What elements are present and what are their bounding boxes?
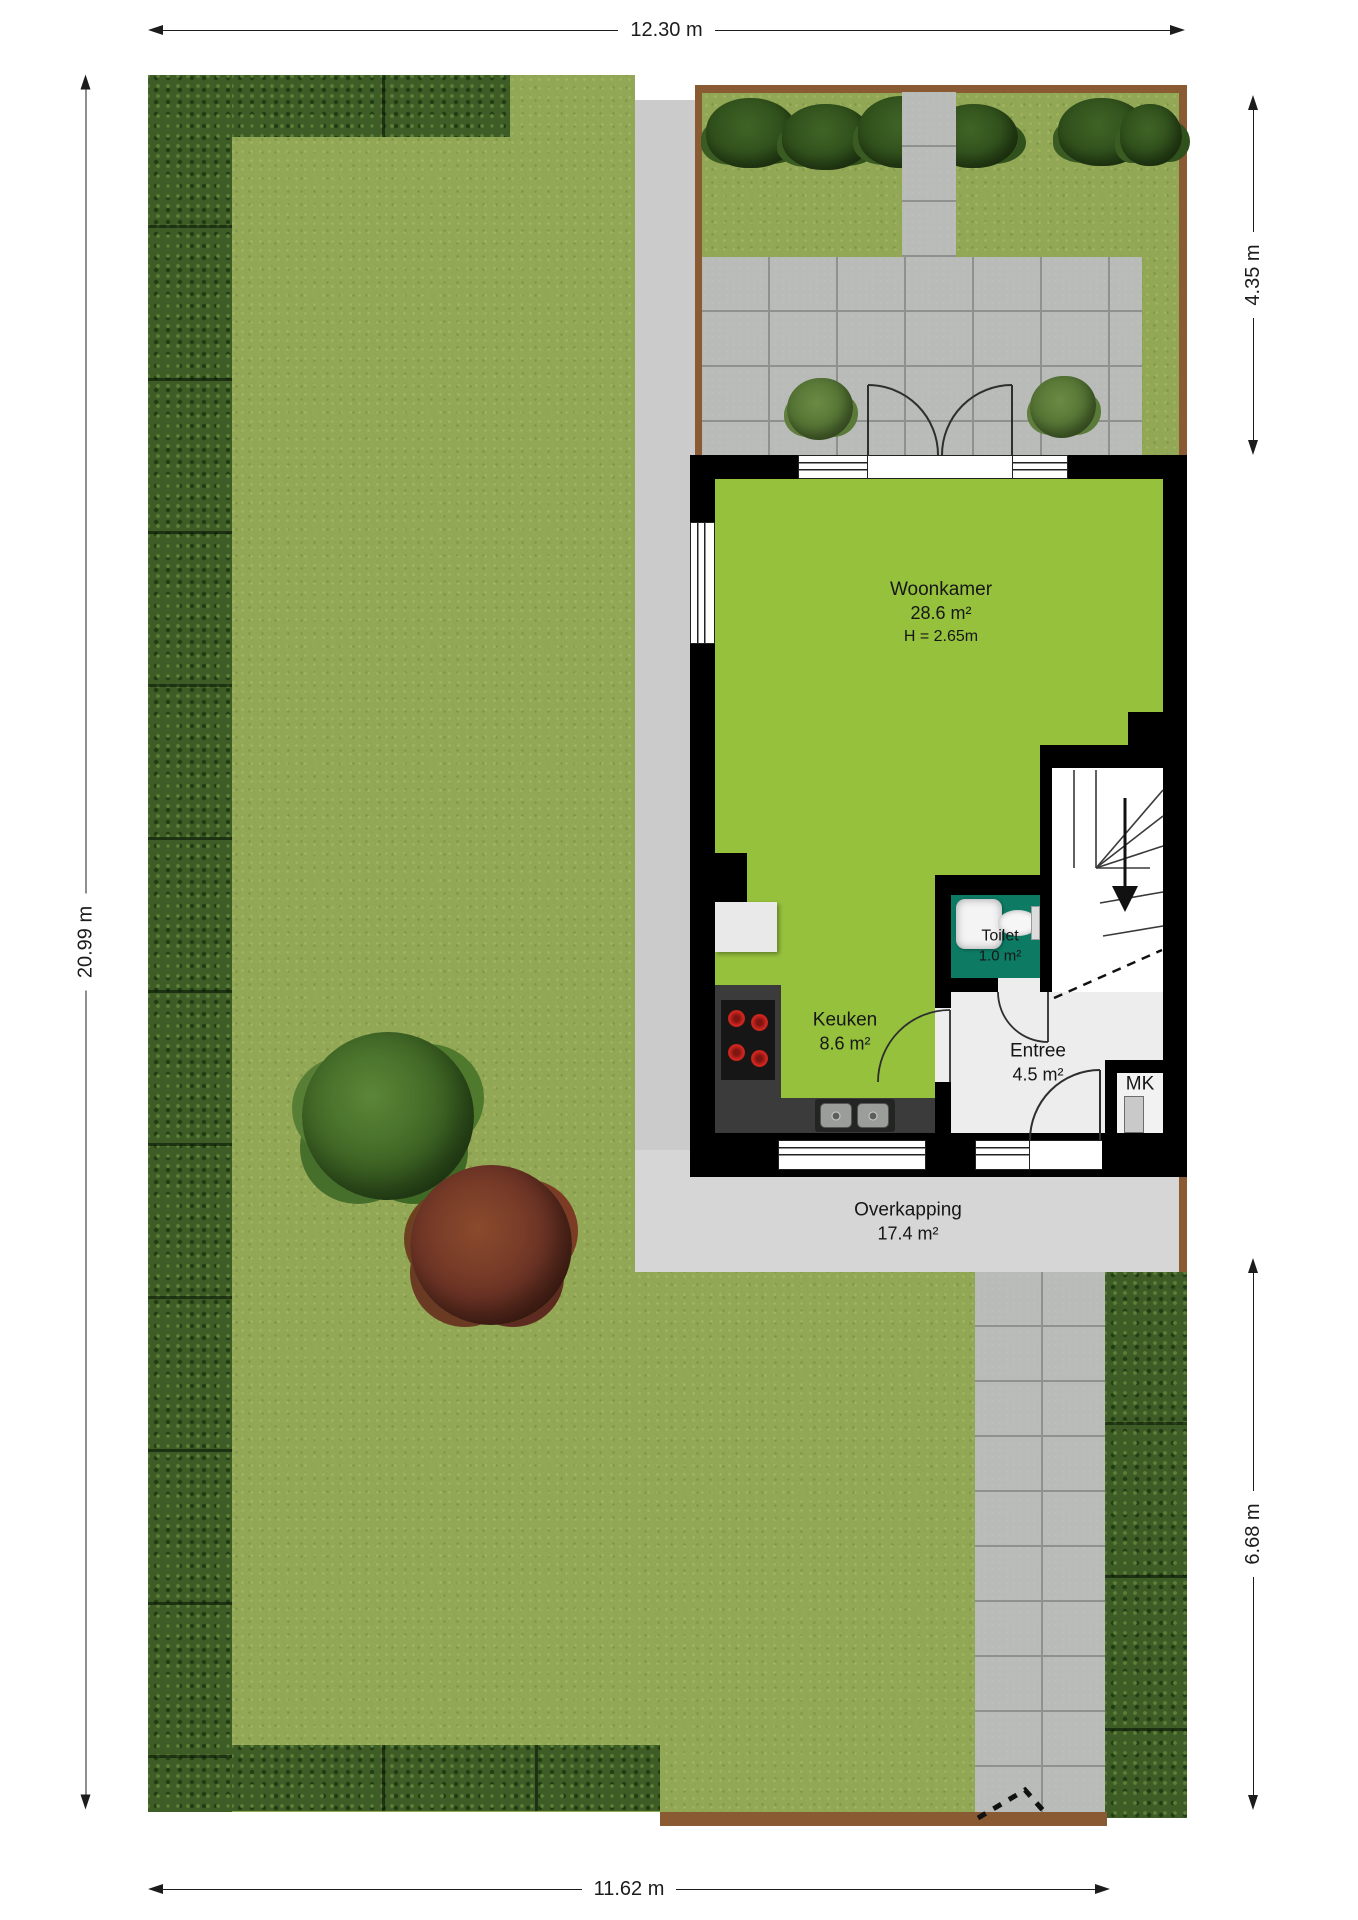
room-area: 1.0 m² [979, 947, 1022, 967]
keuken-label: Keuken 8.6 m² [813, 1008, 877, 1057]
room-name: MK [1126, 1071, 1155, 1096]
dimension-line [676, 1889, 1095, 1890]
dimension-line [163, 30, 618, 31]
arrow-left-icon [1248, 440, 1258, 455]
dimension-value: 11.62 m [582, 1878, 677, 1901]
dimension-line [715, 30, 1170, 31]
arrow-right-icon [1248, 95, 1258, 110]
floor-plan-canvas: Woonkamer 28.6 m² H = 2.65m Keuken 8.6 m… [0, 0, 1358, 1920]
room-area: 4.5 m² [1010, 1064, 1066, 1088]
room-area: 8.6 m² [813, 1033, 877, 1057]
staircase-cut-line [1054, 950, 1162, 998]
arrow-right-icon [81, 74, 91, 89]
dimension-line [1253, 1273, 1254, 1491]
mk-label: MK [1126, 1071, 1155, 1096]
dimension-line [85, 89, 86, 893]
dimension-line [1253, 318, 1254, 440]
room-area: 28.6 m² [890, 602, 992, 626]
room-name: Overkapping [854, 1198, 962, 1223]
toilet-label: Toilet 1.0 m² [979, 926, 1022, 967]
arrow-right-icon [1095, 1884, 1110, 1894]
arrow-left-icon [81, 1795, 91, 1810]
room-area: 17.4 m² [854, 1223, 962, 1247]
dimension-value: 12.30 m [618, 19, 714, 42]
arrow-left-icon [148, 25, 163, 35]
dimension-value: 4.35 m [1242, 232, 1265, 317]
dimension-line [85, 990, 86, 1794]
dimension-value: 6.68 m [1242, 1491, 1265, 1576]
arrow-right-icon [1248, 1258, 1258, 1273]
terrace-door-arcs [868, 385, 1012, 455]
dimension-top: 12.30 m [148, 19, 1185, 41]
room-name: Keuken [813, 1008, 877, 1033]
toilet-door-arc [998, 992, 1048, 1042]
arrow-right-icon [1170, 25, 1185, 35]
dimension-bottom: 11.62 m [148, 1878, 1110, 1900]
room-name: Woonkamer [890, 577, 992, 602]
room-name: Toilet [979, 926, 1022, 947]
overkapping-label: Overkapping 17.4 m² [854, 1198, 962, 1247]
dimension-line [1253, 110, 1254, 232]
dimension-line [1253, 1577, 1254, 1795]
room-height: H = 2.65m [890, 626, 992, 647]
room-name: Entree [1010, 1039, 1066, 1064]
kitchen-door-arc [878, 1010, 950, 1082]
dimension-right-upper: 4.35 m [1242, 95, 1264, 455]
dimension-right-lower: 6.68 m [1242, 1258, 1264, 1810]
dimension-line [163, 1889, 582, 1890]
entree-label: Entree 4.5 m² [1010, 1039, 1066, 1088]
linework-overlay [0, 0, 1358, 1920]
dimension-value: 20.99 m [74, 894, 97, 990]
dimension-left: 20.99 m [75, 75, 97, 1810]
gate-dashed-line [978, 1790, 1048, 1818]
arrow-left-icon [148, 1884, 163, 1894]
woonkamer-label: Woonkamer 28.6 m² H = 2.65m [890, 577, 992, 647]
arrow-left-icon [1248, 1795, 1258, 1810]
staircase-treads [1074, 770, 1163, 936]
